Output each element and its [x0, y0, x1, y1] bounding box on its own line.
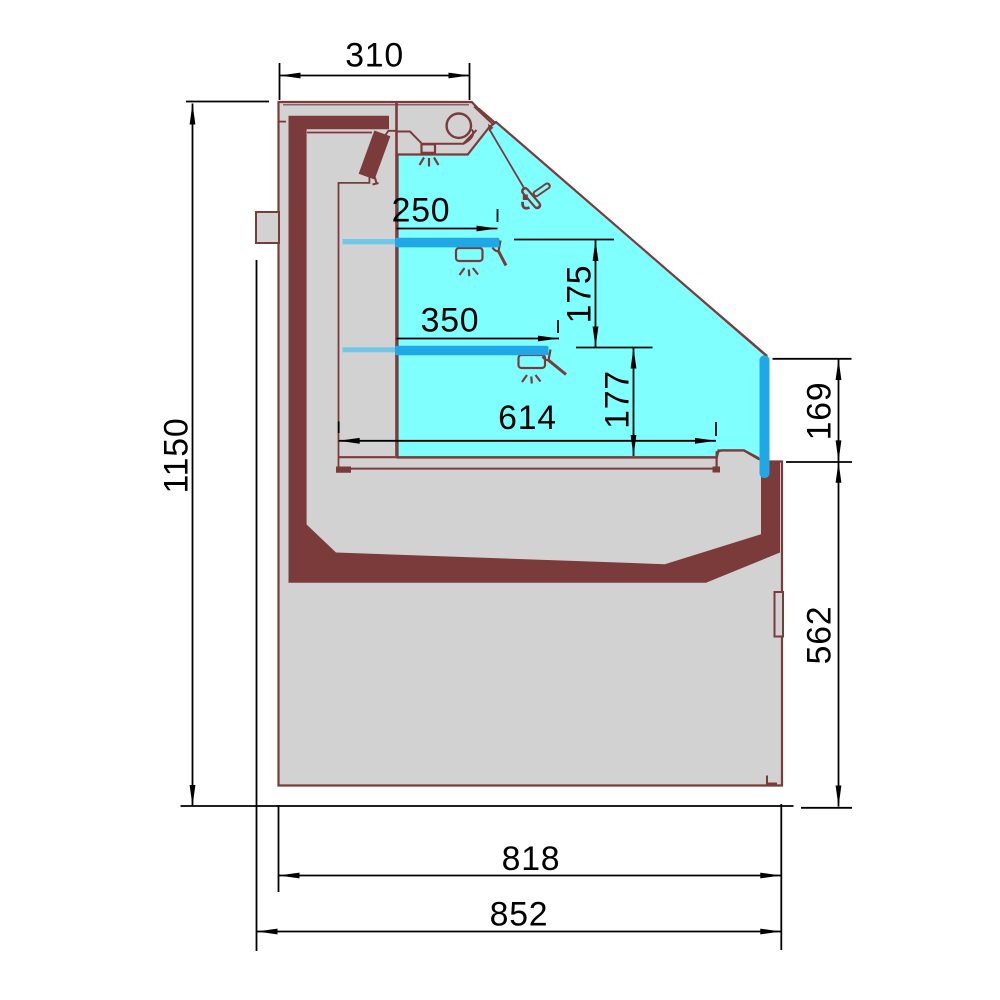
svg-text:169: 169 — [801, 382, 839, 441]
svg-text:175: 175 — [561, 265, 599, 324]
svg-text:250: 250 — [392, 192, 451, 230]
svg-text:614: 614 — [498, 399, 557, 437]
svg-text:852: 852 — [490, 895, 549, 933]
svg-text:562: 562 — [801, 606, 839, 665]
svg-text:350: 350 — [421, 302, 480, 340]
svg-text:177: 177 — [599, 370, 637, 429]
svg-text:310: 310 — [345, 36, 404, 74]
svg-text:818: 818 — [502, 840, 561, 878]
svg-text:1150: 1150 — [157, 418, 195, 494]
